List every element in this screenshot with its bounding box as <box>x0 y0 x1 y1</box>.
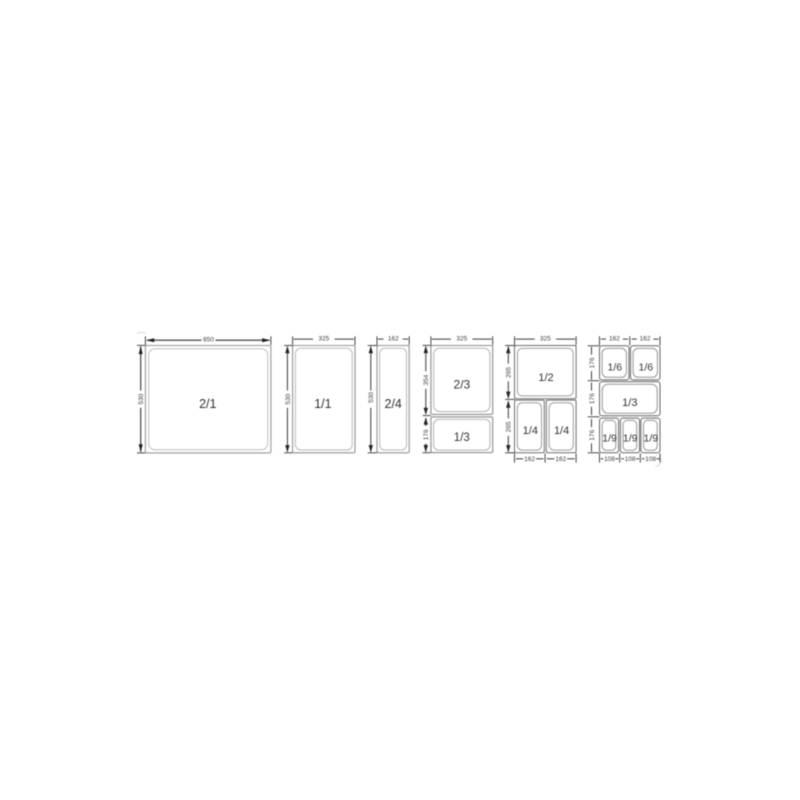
svg-text:2/3: 2/3 <box>454 377 471 391</box>
svg-text:108: 108 <box>604 456 615 463</box>
svg-text:1/9: 1/9 <box>623 433 638 445</box>
svg-text:162: 162 <box>640 335 651 342</box>
svg-text:650: 650 <box>203 337 214 344</box>
svg-text:1/3: 1/3 <box>622 397 637 409</box>
svg-text:162: 162 <box>555 456 566 463</box>
svg-text:176: 176 <box>589 393 596 404</box>
svg-text:162: 162 <box>609 335 620 342</box>
svg-text:1/1: 1/1 <box>314 397 331 411</box>
svg-text:108: 108 <box>645 456 656 463</box>
svg-text:176: 176 <box>589 357 596 368</box>
svg-text:1/4: 1/4 <box>554 425 569 437</box>
svg-text:162: 162 <box>388 335 399 342</box>
svg-text:1/4: 1/4 <box>523 425 538 437</box>
svg-text:1/2: 1/2 <box>538 372 553 384</box>
svg-text:108: 108 <box>625 456 636 463</box>
svg-text:162: 162 <box>524 456 535 463</box>
svg-text:530: 530 <box>368 392 375 403</box>
svg-text:325: 325 <box>318 335 329 342</box>
svg-text:1/9: 1/9 <box>602 433 617 445</box>
svg-text:176: 176 <box>423 429 430 440</box>
svg-text:1/6: 1/6 <box>607 362 622 374</box>
svg-text:2/4: 2/4 <box>385 397 402 411</box>
svg-text:265: 265 <box>506 421 513 432</box>
svg-text:325: 325 <box>456 335 467 342</box>
svg-text:265: 265 <box>506 367 513 378</box>
svg-text:325: 325 <box>540 335 551 342</box>
svg-text:1/3: 1/3 <box>454 432 470 444</box>
svg-text:176: 176 <box>589 429 596 440</box>
svg-text:530: 530 <box>285 393 292 404</box>
svg-text:530: 530 <box>138 393 145 404</box>
svg-text:2/1: 2/1 <box>199 397 216 411</box>
svg-text:1/9: 1/9 <box>643 433 658 445</box>
svg-text:354: 354 <box>423 374 430 385</box>
svg-text:1/6: 1/6 <box>638 362 653 374</box>
